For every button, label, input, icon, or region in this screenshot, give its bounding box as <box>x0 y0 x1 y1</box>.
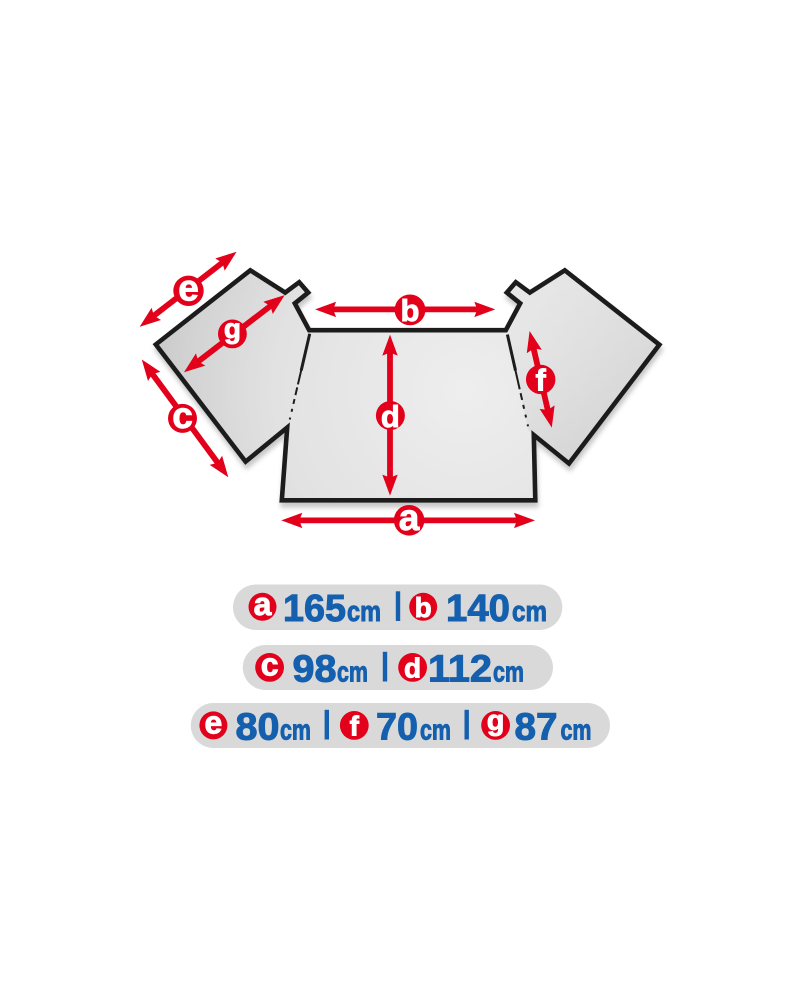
svg-text:b: b <box>415 592 432 623</box>
svg-text:80: 80 <box>236 707 280 749</box>
svg-text:c: c <box>172 395 193 436</box>
svg-text:f: f <box>536 363 547 398</box>
svg-text:87: 87 <box>515 707 558 749</box>
svg-text:cm: cm <box>280 715 311 747</box>
svg-text:cm: cm <box>420 715 451 747</box>
svg-text:d: d <box>381 399 400 434</box>
svg-text:e: e <box>205 705 223 741</box>
svg-text:cm: cm <box>347 596 381 628</box>
svg-text:g: g <box>487 705 505 737</box>
svg-text:cm: cm <box>337 657 368 689</box>
svg-text:98: 98 <box>293 649 337 691</box>
svg-text:165: 165 <box>283 588 346 630</box>
svg-text:a: a <box>254 586 272 622</box>
svg-text:f: f <box>350 711 360 742</box>
svg-text:cm: cm <box>493 657 524 689</box>
svg-text:70: 70 <box>376 707 418 749</box>
svg-text:a: a <box>399 497 420 538</box>
svg-text:112: 112 <box>428 649 492 691</box>
svg-text:140: 140 <box>446 588 510 630</box>
svg-text:c: c <box>261 647 279 683</box>
svg-text:cm: cm <box>561 715 592 747</box>
svg-text:g: g <box>224 313 241 344</box>
svg-text:e: e <box>178 267 199 308</box>
svg-text:b: b <box>401 293 420 328</box>
svg-text:d: d <box>404 653 421 684</box>
svg-text:cm: cm <box>512 596 547 628</box>
